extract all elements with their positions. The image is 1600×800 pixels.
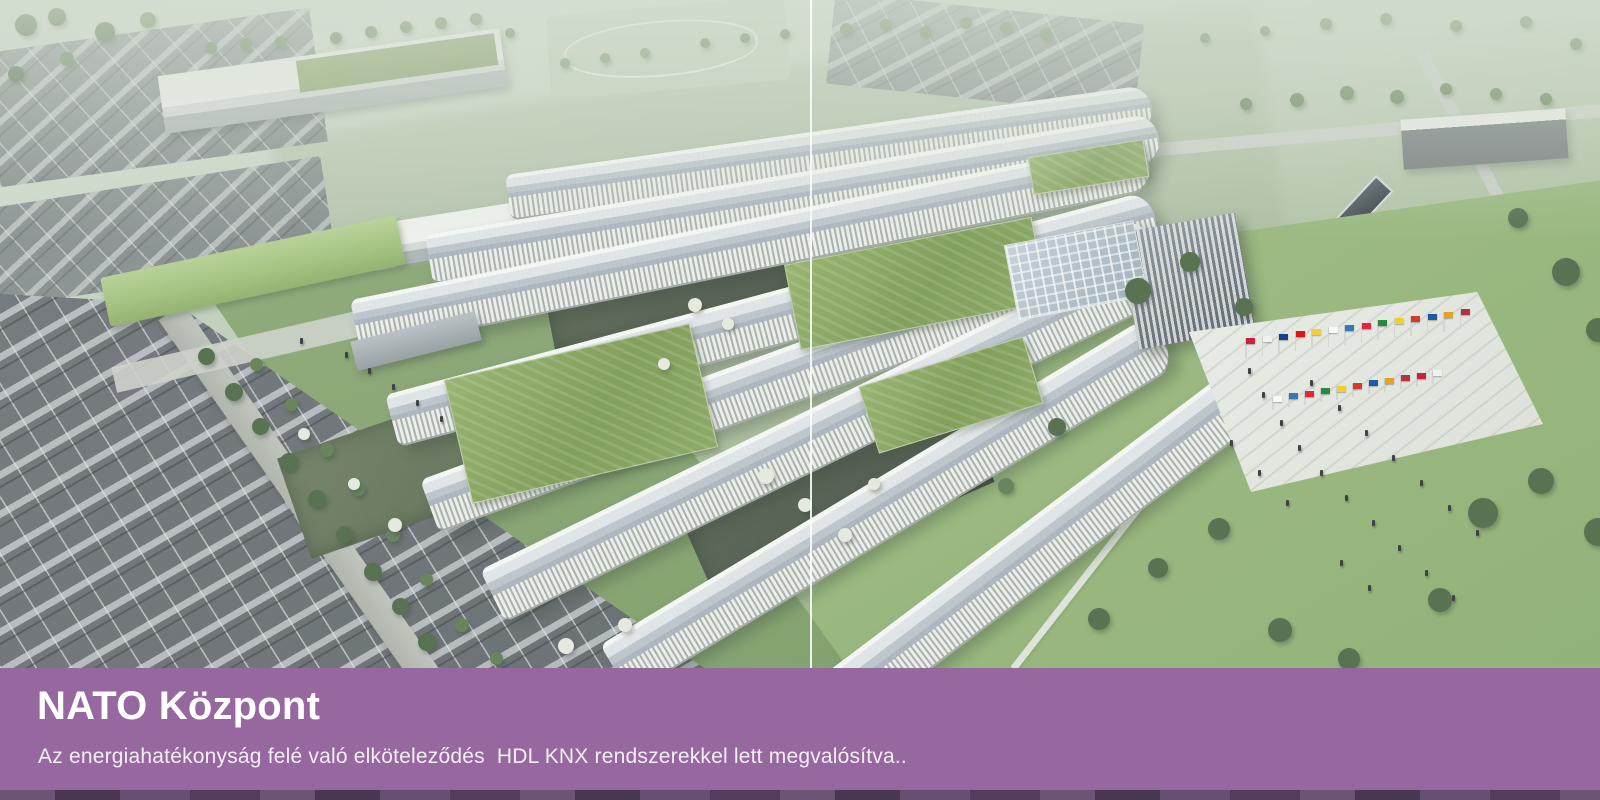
aerial-rendering xyxy=(0,0,1600,668)
slide: NATO Központ Az energiahatékonyság felé … xyxy=(0,0,1600,800)
horizon-haze xyxy=(0,0,1600,240)
page-split-line xyxy=(810,0,812,668)
banner-footer-strip xyxy=(0,790,1600,800)
caption-banner: NATO Központ Az energiahatékonyság felé … xyxy=(0,668,1600,790)
slide-subtitle: Az energiahatékonyság felé való elkötele… xyxy=(0,729,1600,769)
slide-title: NATO Központ xyxy=(0,668,1600,729)
